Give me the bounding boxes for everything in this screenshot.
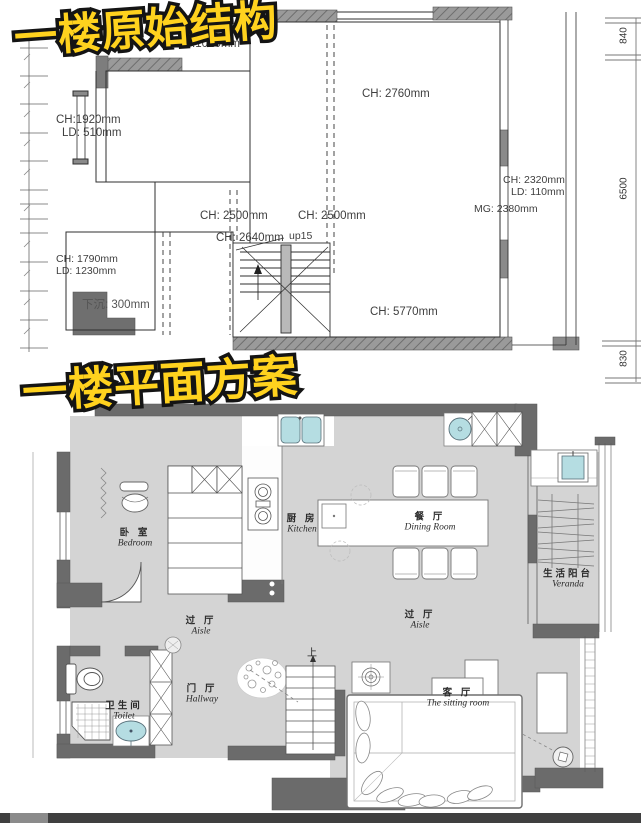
aisle-right-en: Aisle [405, 621, 436, 632]
aisle-right-zh: 过 厅 [405, 610, 436, 621]
floor-plan-page: 一楼原始结构 一楼平面方案 mm LD:1020mm CH: 2760mm CH… [0, 0, 641, 823]
staircase-icon [233, 238, 330, 337]
sitting-en: The sitting room [427, 699, 489, 710]
bedroom-zh: 卧 室 [118, 528, 152, 539]
aisle-left-en: Aisle [186, 627, 217, 638]
left-dimension-line [20, 40, 48, 352]
toilet-en: Toilet [105, 712, 143, 723]
room-label-veranda: 生活阳台 Veranda [543, 569, 593, 592]
wall-dot [270, 591, 275, 596]
kitchen-sink-icon [278, 414, 324, 446]
bedroom-en: Bedroom [118, 539, 152, 550]
dim-right-6500: 6500 [619, 167, 630, 211]
wardrobe-icon [168, 466, 242, 594]
dim-right-830: 830 [619, 337, 630, 381]
room-label-dining: 餐 厅 Dining Room [405, 512, 456, 535]
video-progress-segment [10, 813, 48, 823]
dim-ch-2320: CH: 2320mm [503, 174, 565, 186]
dim-ch-2500-b: CH: 2500mm [298, 210, 366, 223]
dim-ch-2640: CH: 2640mm [216, 232, 284, 245]
aisle-left-zh: 过 厅 [186, 616, 217, 627]
cabinet-x-icon [472, 412, 522, 446]
room-label-aisle-left: 过 厅 Aisle [186, 616, 217, 639]
dim-mg-2380: MG: 2380mm [474, 203, 538, 215]
side-table-icon [352, 662, 390, 693]
dim-ch-2320-group: CH: 2320mm LD: 110mm [503, 174, 565, 198]
dim-up15: up15 [289, 230, 312, 242]
dim-ch-5770: CH: 5770mm [370, 306, 438, 319]
stairs-up-label: 上 [307, 644, 317, 659]
room-label-sitting: 客 厅 The sitting room [427, 688, 489, 711]
veranda-en: Veranda [543, 580, 593, 591]
dim-ch-2500-a: CH: 2500mm [200, 210, 268, 223]
dim-ch-1920-group: CH:1920mm LD: 510mm [56, 114, 121, 140]
room-label-hallway: 门 厅 Hallway [186, 684, 218, 707]
dim-ch-1790-group: CH: 1790mm LD: 1230mm [56, 253, 118, 277]
dining-en: Dining Room [405, 523, 456, 534]
hallway-en: Hallway [186, 695, 218, 706]
kitchen-zh: 厨 房 [287, 514, 318, 525]
dining-zh: 餐 厅 [405, 512, 456, 523]
video-progress-bar [0, 813, 641, 823]
veranda-zh: 生活阳台 [543, 569, 593, 580]
dim-ch-1920: CH:1920mm [56, 114, 121, 127]
scheme-plan-drawing [33, 404, 615, 810]
sofa-icon [347, 695, 522, 808]
dim-ch-1790: CH: 1790mm [56, 253, 118, 265]
dim-sunken-300: 下沉: 300mm [82, 299, 150, 312]
dim-ch-2760: CH: 2760mm [362, 88, 430, 101]
sitting-zh: 客 厅 [427, 688, 489, 699]
kitchen-en: Kitchen [287, 525, 318, 536]
room-label-toilet: 卫生间 Toilet [105, 701, 143, 724]
dim-ld-1230: LD: 1230mm [56, 265, 118, 277]
toilet-zh: 卫生间 [105, 701, 143, 712]
room-label-bedroom: 卧 室 Bedroom [118, 528, 152, 551]
room-label-aisle-right: 过 厅 Aisle [405, 610, 436, 633]
room-label-kitchen: 厨 房 Kitchen [287, 514, 318, 537]
hallway-zh: 门 厅 [186, 684, 218, 695]
dim-ld-510: LD: 510mm [56, 127, 121, 140]
dim-ld-110: LD: 110mm [503, 186, 565, 198]
dim-right-840: 840 [619, 14, 630, 58]
veranda-sink-icon [531, 450, 597, 486]
wall-dot [270, 582, 275, 587]
